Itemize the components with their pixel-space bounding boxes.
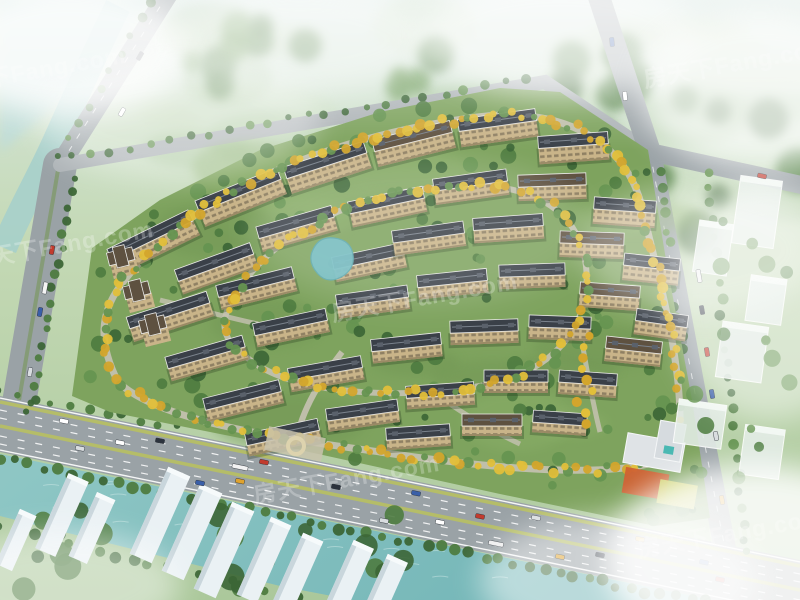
apartment-building [460, 414, 524, 439]
apartment-building [530, 410, 590, 439]
aerial-render: 房天下Fang.com 房天下Fang.com 房天下Fang.com 房天下F… [0, 0, 800, 600]
scene-canvas [0, 0, 800, 600]
apartment-building [556, 370, 620, 401]
apartment-building [384, 424, 454, 454]
apartment-building [448, 319, 521, 348]
